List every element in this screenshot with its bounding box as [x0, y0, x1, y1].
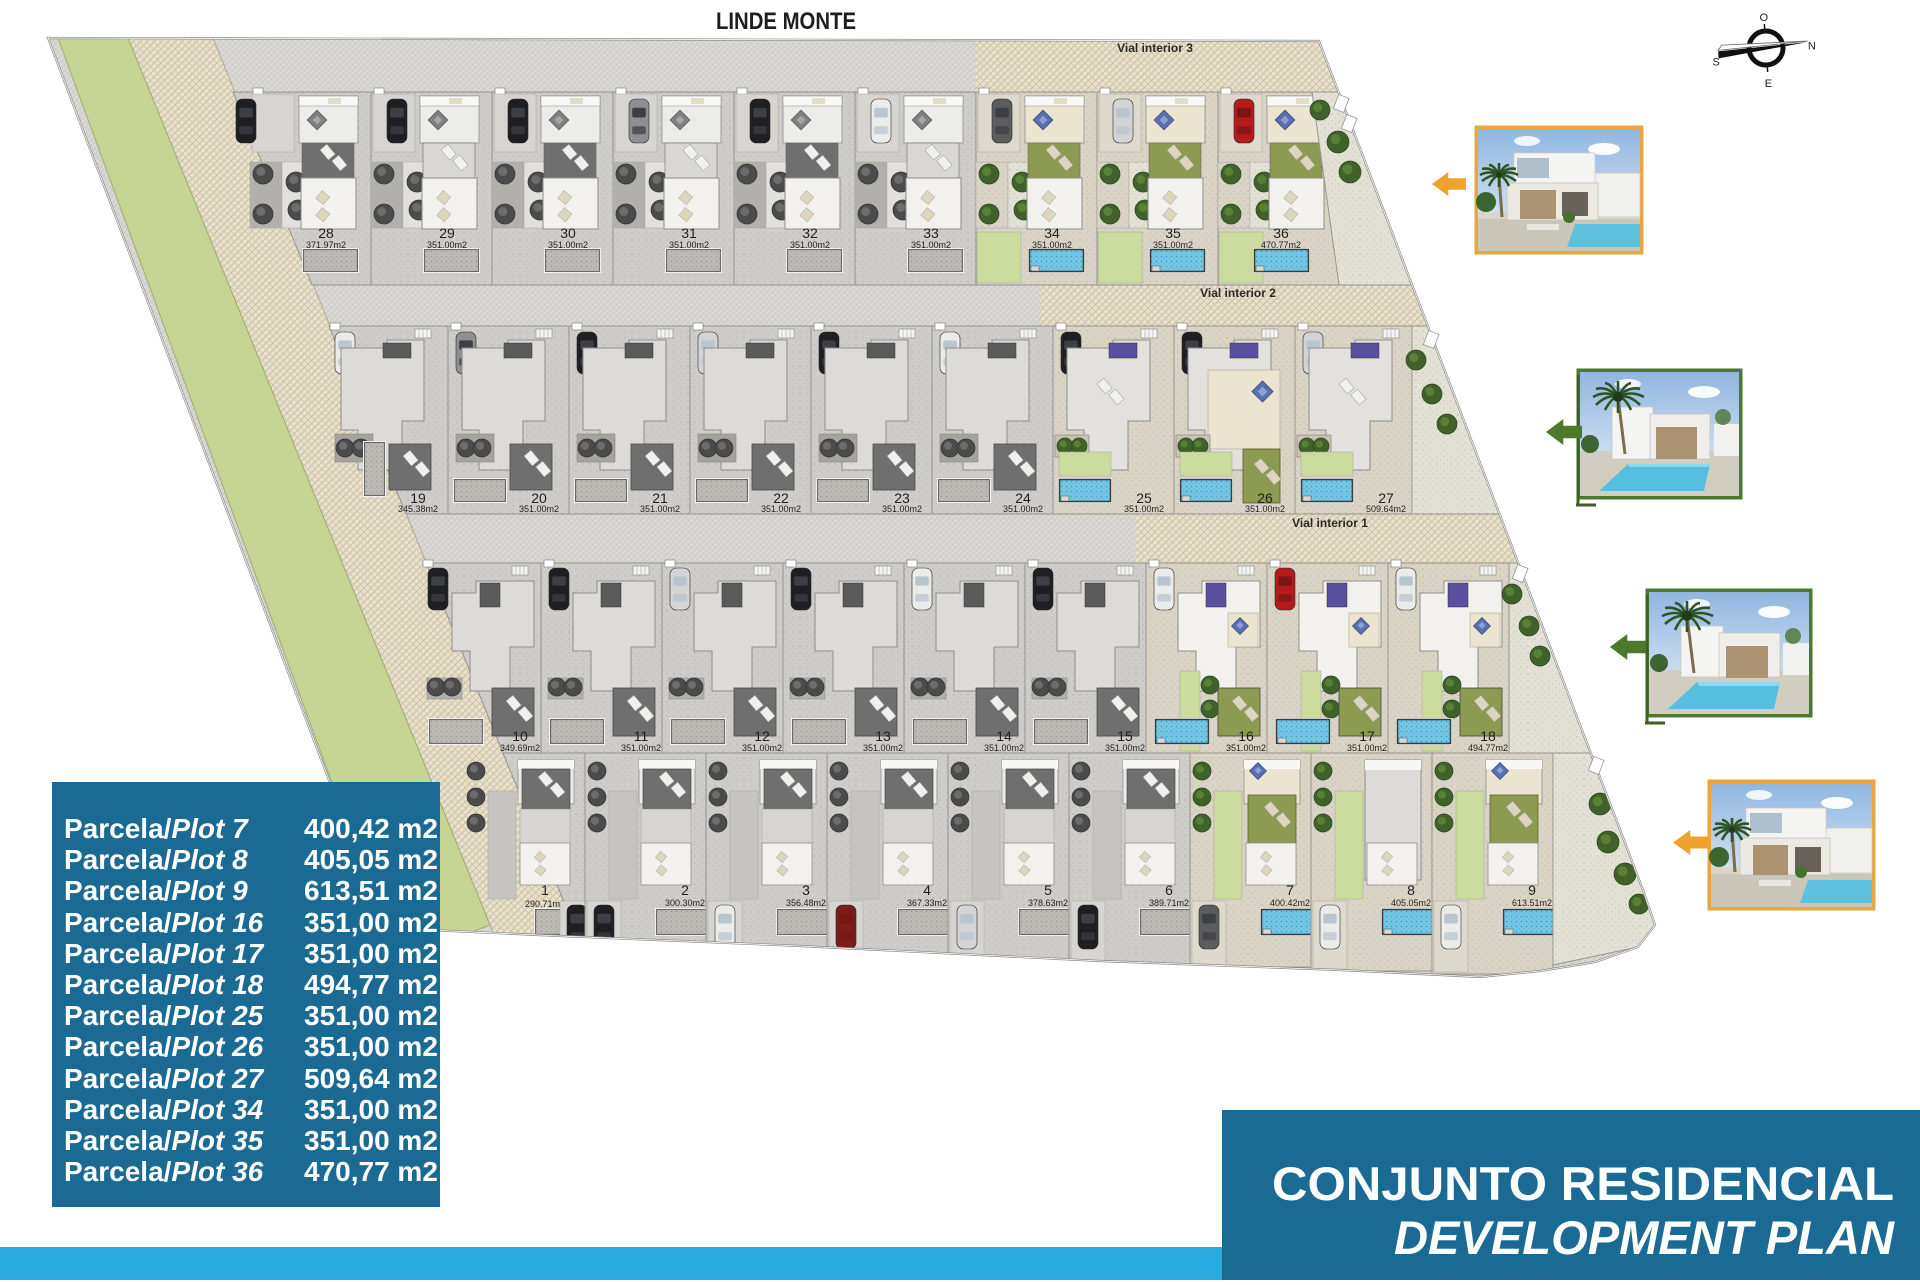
svg-text:400.42m2: 400.42m2: [1270, 898, 1310, 908]
svg-text:Parcela/Plot 18: Parcela/Plot 18: [64, 969, 264, 1000]
svg-text:351,00 m2: 351,00 m2: [304, 907, 438, 938]
svg-text:389.71m2: 389.71m2: [1149, 898, 1189, 908]
svg-text:351.00m2: 351.00m2: [1226, 743, 1266, 753]
svg-text:345.38m2: 345.38m2: [398, 504, 438, 514]
svg-text:351.00m2: 351.00m2: [863, 743, 903, 753]
svg-text:Parcela/Plot 35: Parcela/Plot 35: [64, 1125, 264, 1156]
svg-text:470,77 m2: 470,77 m2: [304, 1156, 438, 1187]
svg-text:15: 15: [1117, 728, 1133, 744]
svg-text:351,00 m2: 351,00 m2: [304, 938, 438, 969]
svg-text:351.00m2: 351.00m2: [1124, 504, 1164, 514]
svg-text:E: E: [1765, 78, 1772, 90]
svg-text:351.00m2: 351.00m2: [1105, 743, 1145, 753]
svg-text:509.64m2: 509.64m2: [1366, 504, 1406, 514]
svg-text:Parcela/Plot 36: Parcela/Plot 36: [64, 1156, 264, 1187]
svg-text:351,00 m2: 351,00 m2: [304, 1031, 438, 1062]
svg-text:9: 9: [1528, 882, 1536, 898]
svg-text:351.00m2: 351.00m2: [519, 504, 559, 514]
svg-text:351,00 m2: 351,00 m2: [304, 1094, 438, 1125]
svg-text:36: 36: [1273, 225, 1289, 241]
svg-text:7: 7: [1286, 882, 1294, 898]
svg-text:494.77m2: 494.77m2: [1468, 743, 1508, 753]
svg-text:5: 5: [1044, 882, 1052, 898]
svg-text:400,42 m2: 400,42 m2: [304, 813, 438, 844]
svg-text:351.00m2: 351.00m2: [1347, 743, 1387, 753]
svg-text:31: 31: [681, 225, 697, 241]
svg-text:Parcela/Plot 26: Parcela/Plot 26: [64, 1031, 264, 1062]
svg-text:10: 10: [512, 728, 528, 744]
svg-text:30: 30: [560, 225, 576, 241]
svg-text:3: 3: [802, 882, 810, 898]
svg-text:12: 12: [754, 728, 770, 744]
svg-text:29: 29: [439, 225, 455, 241]
svg-text:2: 2: [681, 882, 689, 898]
svg-text:351,00 m2: 351,00 m2: [304, 1125, 438, 1156]
svg-text:32: 32: [802, 225, 818, 241]
svg-text:LINDE MONTE: LINDE MONTE: [716, 8, 856, 35]
svg-text:28: 28: [318, 225, 334, 241]
svg-text:349.69m2: 349.69m2: [500, 743, 540, 753]
svg-text:Parcela/Plot 16: Parcela/Plot 16: [64, 907, 264, 938]
svg-text:351.00m2: 351.00m2: [984, 743, 1024, 753]
svg-text:35: 35: [1165, 225, 1181, 241]
svg-text:Vial interior 1: Vial interior 1: [1292, 516, 1368, 530]
svg-text:351.00m2: 351.00m2: [882, 504, 922, 514]
svg-text:33: 33: [923, 225, 939, 241]
svg-text:6: 6: [1165, 882, 1173, 898]
svg-text:13: 13: [875, 728, 891, 744]
svg-text:11: 11: [634, 728, 649, 744]
svg-text:351,00 m2: 351,00 m2: [304, 1000, 438, 1031]
svg-text:4: 4: [923, 882, 931, 898]
svg-text:Parcela/Plot 8: Parcela/Plot 8: [64, 844, 248, 875]
svg-text:613,51 m2: 613,51 m2: [304, 875, 438, 906]
svg-text:34: 34: [1044, 225, 1060, 241]
svg-text:14: 14: [996, 728, 1012, 744]
svg-text:300.30m2: 300.30m2: [665, 898, 705, 908]
svg-text:405.05m2: 405.05m2: [1391, 898, 1431, 908]
svg-text:8: 8: [1407, 882, 1415, 898]
svg-text:Parcela/Plot 7: Parcela/Plot 7: [64, 813, 249, 844]
svg-text:18: 18: [1480, 728, 1496, 744]
svg-text:Parcela/Plot 27: Parcela/Plot 27: [64, 1063, 265, 1094]
svg-text:DEVELOPMENT PLAN: DEVELOPMENT PLAN: [1394, 1211, 1895, 1264]
svg-text:351.00m2: 351.00m2: [742, 743, 782, 753]
svg-text:290.71m2: 290.71m2: [525, 899, 565, 909]
svg-text:16: 16: [1238, 728, 1254, 744]
svg-text:351.00m2: 351.00m2: [640, 504, 680, 514]
svg-text:351.00m2: 351.00m2: [1245, 504, 1285, 514]
svg-text:17: 17: [1359, 728, 1375, 744]
svg-text:Parcela/Plot 34: Parcela/Plot 34: [64, 1094, 264, 1125]
svg-text:N: N: [1808, 41, 1816, 53]
svg-text:367.33m2: 367.33m2: [907, 898, 947, 908]
svg-text:356.48m2: 356.48m2: [786, 898, 826, 908]
svg-text:CONJUNTO RESIDENCIAL: CONJUNTO RESIDENCIAL: [1272, 1157, 1894, 1210]
svg-text:351.00m2: 351.00m2: [1003, 504, 1043, 514]
svg-text:Vial interior 3: Vial interior 3: [1117, 41, 1193, 55]
svg-text:494,77 m2: 494,77 m2: [304, 969, 438, 1000]
svg-text:405,05 m2: 405,05 m2: [304, 844, 438, 875]
svg-text:613.51m2: 613.51m2: [1512, 898, 1552, 908]
svg-text:S: S: [1712, 56, 1719, 68]
svg-text:O: O: [1760, 12, 1769, 24]
svg-text:509,64 m2: 509,64 m2: [304, 1063, 438, 1094]
svg-text:378.63m2: 378.63m2: [1028, 898, 1068, 908]
svg-text:Vial interior 2: Vial interior 2: [1200, 286, 1276, 300]
svg-text:351.00m2: 351.00m2: [761, 504, 801, 514]
svg-text:Parcela/Plot 17: Parcela/Plot 17: [64, 938, 265, 969]
svg-text:Parcela/Plot 9: Parcela/Plot 9: [64, 875, 248, 906]
svg-text:351.00m2: 351.00m2: [621, 743, 661, 753]
svg-text:Parcela/Plot 25: Parcela/Plot 25: [64, 1000, 264, 1031]
